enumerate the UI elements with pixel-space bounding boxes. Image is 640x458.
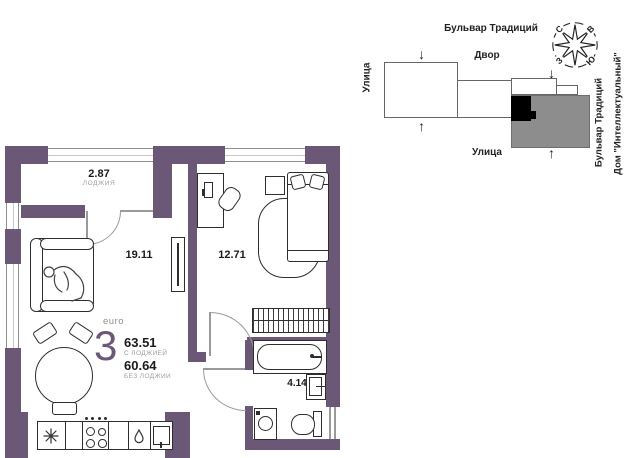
counter-divider xyxy=(150,422,151,449)
window xyxy=(225,148,305,162)
map-section-highlight xyxy=(511,96,531,121)
stove-burner xyxy=(98,439,107,448)
window xyxy=(6,264,19,348)
area-without-loggia: 60.64 xyxy=(124,359,157,372)
basin-tap xyxy=(316,386,325,387)
area-with-loggia: 63.51 xyxy=(124,336,157,349)
door-arc xyxy=(210,312,255,357)
blanket-line xyxy=(288,250,328,251)
floorplan-page: 2.87 ЛОДЖИЯ 19.11 12.71 4.14 euro 3 63.5… xyxy=(0,0,640,458)
fridge-snowflake-icon xyxy=(42,427,60,445)
wall-segment xyxy=(188,164,197,362)
stove-burner xyxy=(86,439,95,448)
counter-divider xyxy=(108,422,109,449)
monitor xyxy=(204,182,213,198)
street-bottom-label: Улица xyxy=(447,147,527,158)
bathroom-area-label: 4.14 xyxy=(277,378,317,389)
wall-segment xyxy=(21,205,85,218)
wall-segment xyxy=(5,412,28,458)
stove-burner xyxy=(86,427,95,436)
street-left-label: Улица xyxy=(362,38,373,118)
counter-divider xyxy=(65,422,66,449)
sink-tap xyxy=(160,442,162,448)
stove-knob xyxy=(85,417,88,420)
window xyxy=(6,203,19,229)
map-section-highlight-notch xyxy=(531,111,536,119)
courtyard-label: Двор xyxy=(447,50,527,61)
washer-panel xyxy=(256,411,260,415)
counter-divider xyxy=(82,422,83,449)
floor-plan: 2.87 ЛОДЖИЯ 19.11 12.71 4.14 euro 3 63.5… xyxy=(0,0,345,458)
map-building-outline xyxy=(556,85,578,95)
monitor-stand xyxy=(202,189,204,196)
tv-screen-line xyxy=(177,243,179,286)
chair xyxy=(52,402,77,415)
location-map: ↓ ↑ ↓ ↑ Бульвар Традиций Двор Улица Улиц… xyxy=(345,0,640,200)
window-line xyxy=(334,407,336,439)
wall-segment xyxy=(247,439,340,450)
house-name-label: Дом "Интеллектуальный" xyxy=(613,34,624,194)
washer-drum xyxy=(258,416,273,431)
loggia-label: 2.87 ЛОДЖИЯ xyxy=(49,168,149,187)
stove-knob xyxy=(104,417,107,420)
area-with-loggia-caption: С ЛОДЖИЕЙ xyxy=(124,350,167,357)
room-count: 3 xyxy=(94,325,117,367)
stove-knob xyxy=(91,417,94,420)
map-building-outline xyxy=(384,62,458,118)
kitchen-sink xyxy=(153,426,170,445)
map-building-outline xyxy=(457,80,512,118)
dining-table xyxy=(35,347,93,405)
nightstand xyxy=(265,176,285,195)
chair xyxy=(68,321,94,345)
loggia-area: 2.87 xyxy=(49,168,149,180)
door-arc xyxy=(203,369,246,411)
loggia-caption: ЛОДЖИЯ xyxy=(49,180,149,187)
wall-segment xyxy=(5,146,21,203)
entrance-arrow-down: ↓ xyxy=(418,47,425,61)
entrance-arrow-up: ↑ xyxy=(548,146,555,160)
water-drop-icon xyxy=(134,429,144,444)
counter-divider xyxy=(128,422,129,449)
window xyxy=(48,148,153,162)
bedroom-area-label: 12.71 xyxy=(202,249,262,261)
wall-segment xyxy=(153,164,172,218)
wall-segment xyxy=(188,352,206,362)
window-line xyxy=(329,407,331,439)
living-area-label: 19.11 xyxy=(109,249,169,261)
chair xyxy=(32,321,58,345)
stove-knob xyxy=(98,417,101,420)
toilet-bowl xyxy=(291,414,315,435)
compass-rose: С В Ю З xyxy=(546,16,604,74)
person-illustration xyxy=(40,248,92,304)
area-without-loggia-caption: БЕЗ ЛОДЖИИ xyxy=(124,373,171,380)
bathtub-drain xyxy=(310,354,314,358)
partition-line xyxy=(120,210,153,212)
entrance-arrow-up: ↑ xyxy=(418,119,425,133)
wall-segment xyxy=(153,146,225,164)
stove-burner xyxy=(98,428,106,436)
wardrobe-rail xyxy=(254,320,328,321)
wall-segment xyxy=(5,229,21,264)
